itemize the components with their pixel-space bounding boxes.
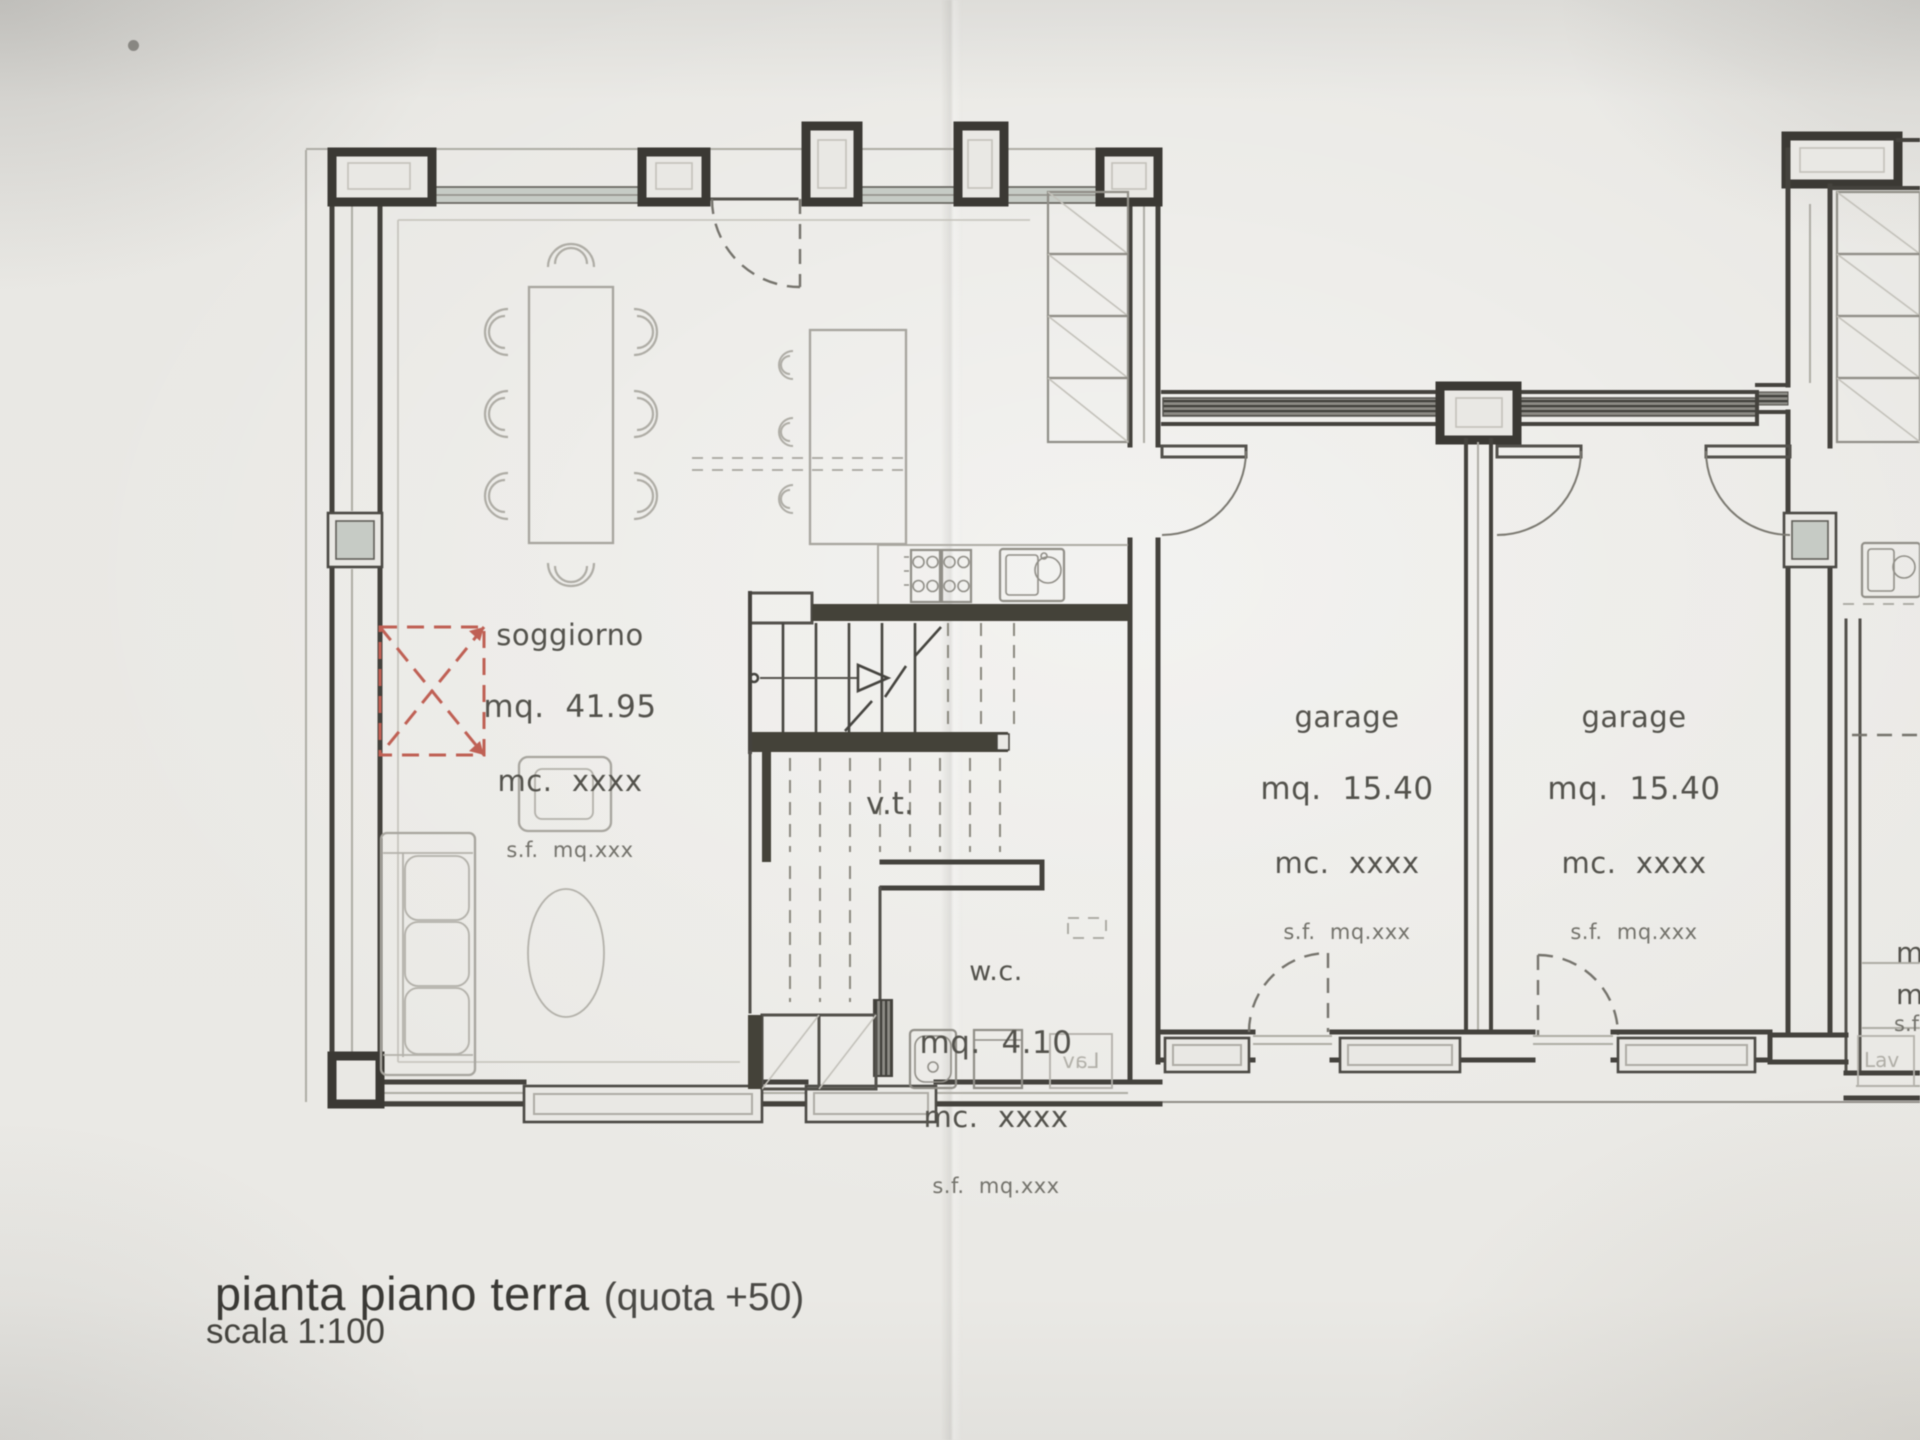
room-surface: s.f. mq.xxx — [920, 1173, 1073, 1199]
scanned-floor-plan-page: { "title_block": { "title": "pianta pian… — [0, 0, 1920, 1440]
room-label-garage-right: garage mq. 15.40 mc. xxxx s.f. mq.xxx — [1547, 663, 1720, 964]
coffee-table — [528, 889, 604, 1017]
beam-dashed-line — [692, 458, 908, 470]
room-label-wc: w.c. mq. 4.10 mc. xxxx s.f. mq.xxx — [920, 917, 1073, 1218]
kitchen-sink — [1000, 549, 1064, 601]
dining-table-set — [485, 244, 657, 586]
understair-closet — [748, 1015, 876, 1089]
mirror-dashed — [1068, 918, 1106, 938]
drawing-title: pianta piano terra(quota +50) — [206, 1248, 804, 1321]
right-unit — [1706, 136, 1920, 1098]
photographed-paper: soggiorno mq. 41.95 mc. xxxx s.f. mq.xxx… — [0, 0, 1920, 1440]
room-volume: mc. xxxx — [483, 763, 656, 799]
drawing-scale: scala 1:100 — [206, 1312, 385, 1352]
garage-right-door-leaf — [1497, 446, 1581, 457]
edge-fragment-1: m — [1896, 936, 1920, 969]
sofa — [381, 833, 475, 1075]
room-area: mq. 4.10 — [920, 1026, 1073, 1061]
room-area: mq. 41.95 — [483, 690, 656, 725]
room-surface: s.f. mq.xxx — [1547, 919, 1720, 945]
room-surface: s.f. mq.xxx — [1260, 919, 1433, 945]
edge-fragment-3: s.f — [1894, 1012, 1919, 1036]
room-label-soggiorno: soggiorno mq. 41.95 mc. xxxx s.f. mq.xxx — [483, 581, 656, 882]
kitchen-fixtures — [692, 192, 1128, 604]
room-volume: mc. xxxx — [1547, 845, 1720, 881]
garage-left-door-leaf — [1162, 446, 1246, 457]
room-name: garage — [1260, 701, 1433, 734]
room-name: w.c. — [920, 955, 1073, 988]
room-volume: mc. xxxx — [1260, 845, 1433, 881]
title-elevation-note: (quota +50) — [604, 1276, 805, 1319]
laundry-label-mirrored: Lav — [1063, 1049, 1100, 1073]
room-area: mq. 15.40 — [1260, 772, 1433, 807]
stairwell-label: v.t. — [866, 786, 914, 822]
demolition-x-marker — [380, 627, 484, 755]
room-volume: mc. xxxx — [920, 1099, 1073, 1135]
room-label-garage-left: garage mq. 15.40 mc. xxxx s.f. mq.xxx — [1260, 663, 1433, 964]
kitchen-island — [810, 330, 906, 544]
edge-fragment-2: m — [1896, 978, 1920, 1011]
room-surface: s.f. mq.xxx — [483, 837, 656, 863]
room-name: garage — [1547, 701, 1720, 734]
cooktop — [904, 550, 971, 602]
right-unit-sink — [1862, 543, 1920, 597]
drawing-layer: soggiorno mq. 41.95 mc. xxxx s.f. mq.xxx… — [0, 0, 1920, 1440]
room-area: mq. 15.40 — [1547, 772, 1720, 807]
garage-pedestrian-doors — [1249, 953, 1618, 1035]
room-name: soggiorno — [483, 619, 656, 652]
edge-fragment-laundry: Lav — [1864, 1048, 1899, 1072]
